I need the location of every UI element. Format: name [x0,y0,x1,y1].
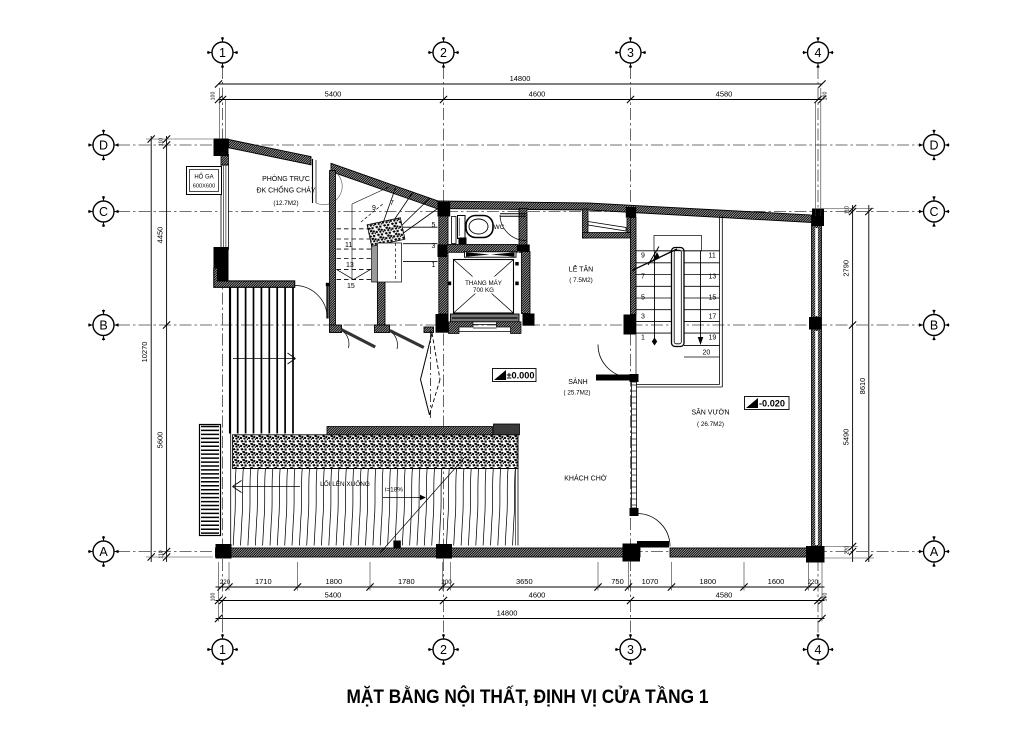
svg-text:A: A [930,545,939,559]
svg-text:4450: 4450 [156,227,165,244]
svg-text:1: 1 [219,46,226,60]
svg-text:i=18%: i=18% [385,487,403,494]
svg-text:14800: 14800 [497,608,518,617]
svg-text:B: B [930,318,938,332]
svg-text:7: 7 [641,274,645,281]
svg-text:15: 15 [709,295,717,302]
svg-text:1800: 1800 [699,577,716,586]
svg-text:10270: 10270 [140,342,149,363]
svg-text:1: 1 [432,262,436,269]
svg-text:1070: 1070 [642,577,659,586]
svg-text:3: 3 [627,643,634,657]
svg-text:2790: 2790 [842,260,851,277]
svg-text:220: 220 [808,579,819,586]
svg-text:1: 1 [641,335,645,342]
svg-text:4: 4 [815,46,822,60]
svg-text:5490: 5490 [842,429,851,446]
svg-text:( 26.7M2): ( 26.7M2) [697,421,724,428]
svg-text:1: 1 [219,643,226,657]
svg-text:2: 2 [440,643,447,657]
svg-text:±0.000: ±0.000 [507,370,535,381]
svg-text:LỐI LÊN XUỐNG: LỐI LÊN XUỐNG [320,478,370,488]
svg-text:110: 110 [159,550,165,558]
svg-text:19: 19 [709,335,717,342]
svg-text:4580: 4580 [716,89,733,98]
svg-text:700 KG: 700 KG [473,287,494,294]
svg-text:ĐK CHỐNG CHÁY: ĐK CHỐNG CHÁY [256,185,315,195]
svg-text:HỐ GA: HỐ GA [194,174,213,181]
svg-text:14800: 14800 [510,74,531,83]
svg-text:11: 11 [709,253,716,260]
svg-text:1780: 1780 [398,577,415,586]
svg-text:11: 11 [345,242,352,249]
svg-text:20: 20 [703,350,711,357]
svg-text:D: D [99,138,108,152]
svg-text:LỄ TÂN: LỄ TÂN [569,265,593,274]
svg-text:3: 3 [432,243,436,250]
svg-text:100: 100 [823,92,829,101]
svg-text:13: 13 [709,274,717,281]
svg-text:4580: 4580 [716,590,733,599]
svg-text:1710: 1710 [255,577,272,586]
svg-text:SÂN VƯỜN: SÂN VƯỜN [691,408,729,417]
svg-text:7: 7 [390,200,394,207]
svg-text:3650: 3650 [516,577,533,586]
svg-text:9: 9 [641,253,645,260]
svg-text:5400: 5400 [325,89,342,98]
svg-text:( 25.7M2): ( 25.7M2) [564,390,591,397]
svg-text:5400: 5400 [325,590,342,599]
svg-text:3: 3 [641,314,645,321]
svg-text:(12.7M2): (12.7M2) [273,200,298,207]
svg-text:-0.020: -0.020 [759,398,785,409]
svg-text:100: 100 [211,92,217,101]
svg-text:17: 17 [709,314,717,321]
svg-text:750: 750 [611,577,624,586]
svg-text:4: 4 [815,643,822,657]
svg-text:C: C [929,205,938,219]
svg-text:4600: 4600 [529,590,546,599]
svg-text:220: 220 [845,546,851,555]
svg-text:4600: 4600 [529,89,546,98]
svg-text:110: 110 [845,206,851,214]
svg-text:PHÒNG TRỰC: PHÒNG TRỰC [262,174,310,183]
svg-text:D: D [929,138,938,152]
svg-text:2: 2 [440,46,447,60]
svg-text:SẢNH: SẢNH [568,377,587,386]
svg-text:5: 5 [641,295,645,302]
svg-text:8610: 8610 [858,378,867,395]
svg-text:13: 13 [346,262,354,269]
svg-text:THANG MÁY: THANG MÁY [465,280,502,287]
svg-text:( 7.5M2): ( 7.5M2) [569,277,592,284]
svg-text:3: 3 [627,46,634,60]
svg-text:A: A [99,545,108,559]
svg-text:5600: 5600 [156,432,165,449]
svg-text:1800: 1800 [325,577,342,586]
svg-text:15: 15 [347,283,355,290]
svg-text:C: C [99,205,108,219]
svg-text:5: 5 [432,222,436,229]
svg-text:100: 100 [823,593,829,602]
svg-text:100: 100 [211,593,217,602]
svg-text:KHÁCH CHỜ: KHÁCH CHỜ [564,474,607,483]
svg-text:1600: 1600 [768,577,785,586]
svg-text:600X600: 600X600 [193,184,215,190]
svg-text:B: B [99,318,107,332]
svg-text:MẶT BẰNG NỘI THẤT, ĐỊNH VỊ CỬA: MẶT BẰNG NỘI THẤT, ĐỊNH VỊ CỬA TẦNG 1 [347,684,709,708]
